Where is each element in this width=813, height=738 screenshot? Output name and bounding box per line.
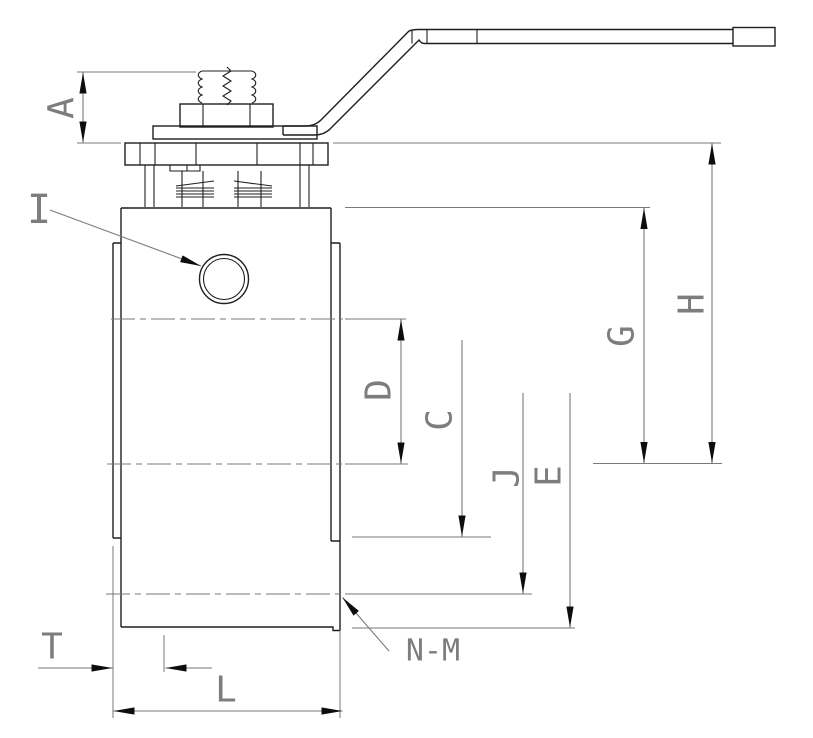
stem-hole-outer-circle bbox=[200, 255, 249, 304]
handle bbox=[283, 28, 775, 136]
dim-NM: N-M bbox=[343, 598, 461, 669]
dim-label-h: H bbox=[672, 293, 713, 315]
gland-flange bbox=[125, 143, 328, 171]
dim-label-a: A bbox=[42, 97, 83, 119]
dim-E: E bbox=[352, 393, 575, 628]
dim-T: T bbox=[38, 546, 212, 718]
dim-label-g: G bbox=[602, 325, 643, 347]
handle-base-plate bbox=[153, 126, 317, 139]
dim-label-l: L bbox=[215, 670, 237, 711]
handle-grip bbox=[733, 28, 775, 47]
dim-label-n-m: N-M bbox=[406, 634, 460, 669]
packing-washers-right bbox=[234, 181, 272, 197]
dimensions: A I D C J E bbox=[27, 72, 722, 718]
dim-L: L bbox=[114, 631, 343, 719]
dim-label-d: D bbox=[359, 379, 400, 401]
thread-zigzag bbox=[223, 67, 231, 105]
stem-hole-inner-circle bbox=[204, 259, 245, 300]
stem-nut bbox=[180, 104, 273, 127]
dim-label-c: C bbox=[420, 409, 461, 431]
valve-body bbox=[113, 208, 340, 631]
dim-label-t: T bbox=[41, 627, 63, 668]
valve-drawing-svg: A I D C J E bbox=[0, 0, 813, 738]
dim-I: I bbox=[27, 187, 201, 266]
dim-D: D bbox=[345, 319, 408, 464]
dim-A: A bbox=[42, 72, 197, 143]
stem-threads bbox=[198, 67, 256, 105]
flange-notch bbox=[170, 165, 200, 171]
centerlines bbox=[106, 319, 343, 594]
dim-label-i: I bbox=[27, 187, 51, 233]
dim-label-j: J bbox=[487, 466, 528, 488]
dim-C: C bbox=[352, 340, 491, 537]
valve-outline bbox=[113, 28, 775, 631]
dim-H: H bbox=[333, 143, 721, 463]
dim-label-e: E bbox=[529, 465, 570, 487]
drawing-canvas: A I D C J E bbox=[0, 0, 813, 738]
